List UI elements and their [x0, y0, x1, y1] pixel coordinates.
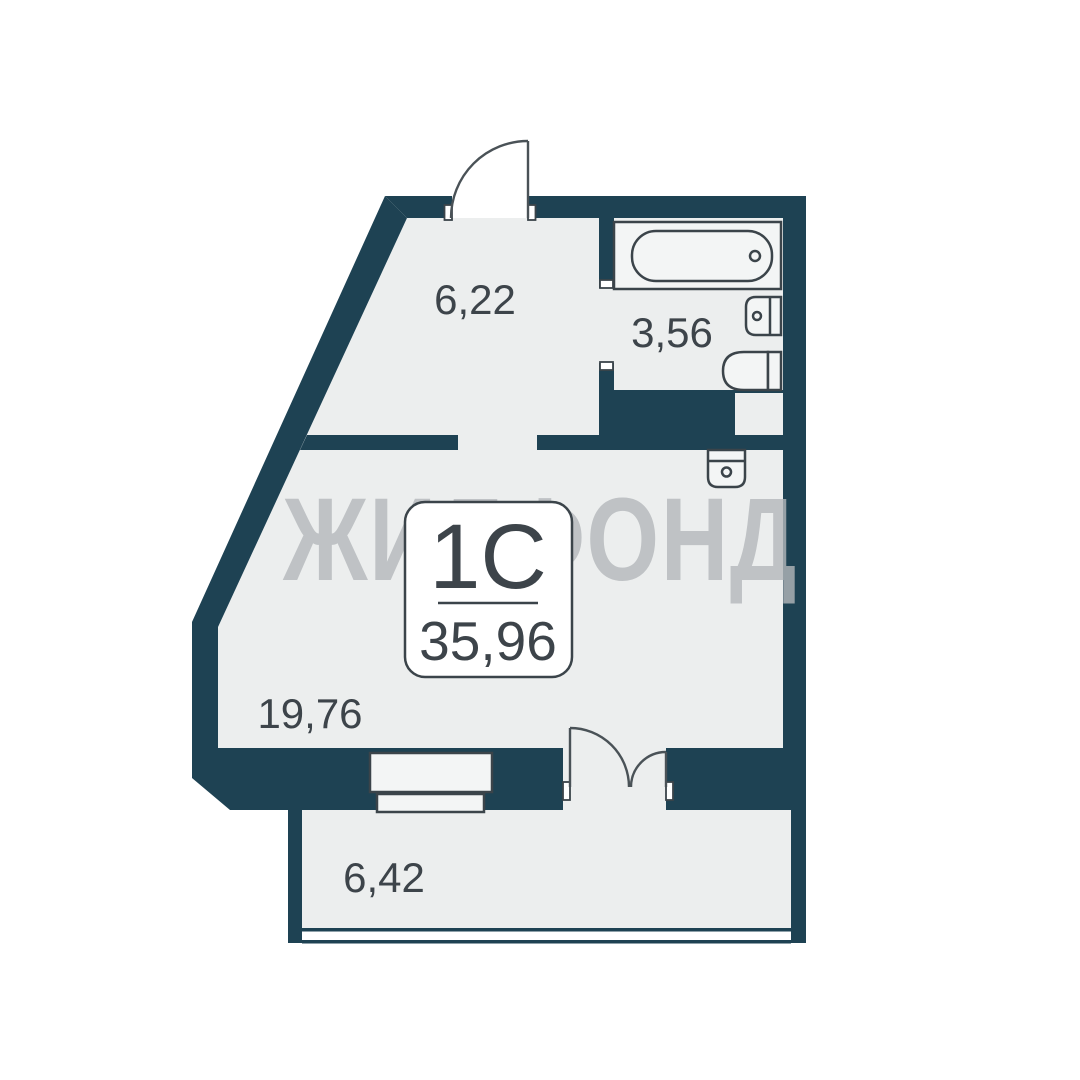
window-frame [370, 753, 492, 792]
bathroom-door-top-jamb [600, 280, 613, 288]
floor-plan: ЖИЛФОНД 1С 35,96 6,22 3,56 19,76 6,42 [0, 0, 1080, 1080]
bathroom-left-wall-top [599, 218, 614, 288]
unit-label-card: 1С 35,96 [405, 502, 572, 677]
room-area-label-living-room: 19,76 [257, 690, 362, 737]
toilet-icon [723, 352, 781, 390]
room-area-label-balcony: 6,42 [343, 854, 425, 901]
sink-icon [746, 297, 781, 335]
balcony-glazing-bottom-line [302, 940, 791, 944]
toilet-bowl [723, 352, 768, 390]
top-wall-right [528, 196, 806, 218]
unit-type-text: 1С [429, 506, 547, 608]
window-sill [377, 794, 484, 812]
toilet-tank [768, 352, 781, 390]
hall-partition-left [300, 435, 458, 450]
bottom-wall-right [666, 748, 791, 810]
vent-shaft-niche [735, 393, 783, 435]
bathroom-door-bottom-jamb [600, 362, 613, 370]
bathtub-icon [614, 222, 781, 289]
room-area-label-hallway: 6,22 [434, 276, 516, 323]
hall-partition-right [537, 435, 599, 450]
entrance-opening [452, 196, 528, 218]
balcony-glazing-top-line [302, 928, 791, 932]
sink-body [746, 297, 781, 335]
balcony-right-wall [791, 810, 806, 943]
room-area-label-bathroom: 3,56 [631, 309, 713, 356]
balcony-left-wall [288, 810, 302, 943]
balcony-glazing [302, 932, 791, 941]
unit-area-text: 35,96 [419, 610, 557, 672]
